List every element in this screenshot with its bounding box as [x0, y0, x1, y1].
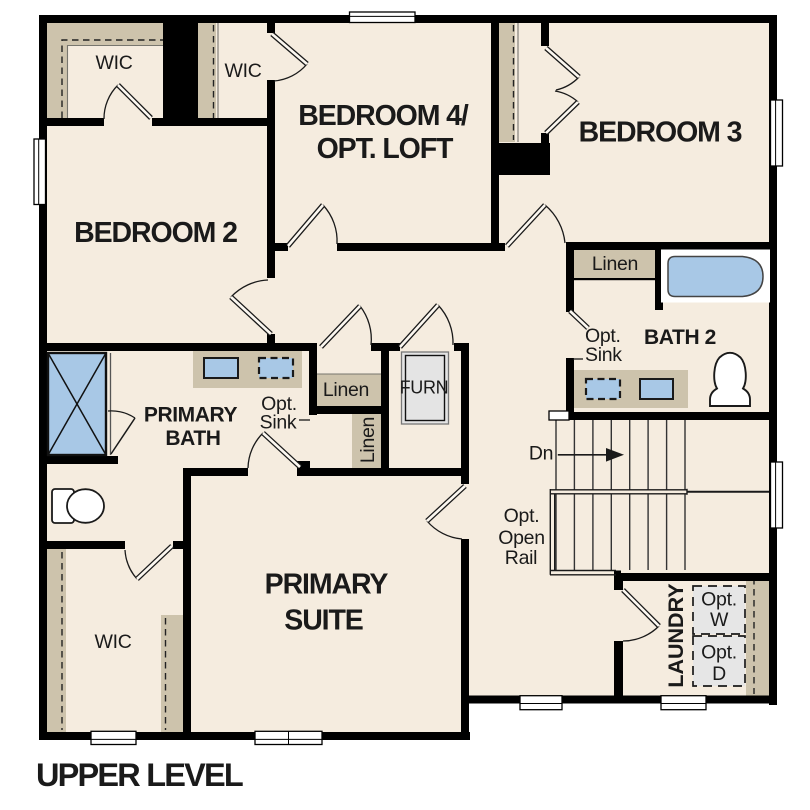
svg-text:WIC: WIC [94, 631, 131, 653]
svg-text:UPPER LEVEL: UPPER LEVEL [36, 757, 243, 793]
svg-text:BATH: BATH [165, 427, 220, 450]
svg-text:BEDROOM 3: BEDROOM 3 [579, 117, 742, 149]
svg-text:LAUNDRY: LAUNDRY [664, 583, 688, 687]
svg-text:Linen: Linen [323, 379, 369, 401]
svg-text:BEDROOM 2: BEDROOM 2 [74, 217, 237, 249]
svg-text:Rail: Rail [505, 547, 537, 569]
svg-text:Linen: Linen [592, 253, 638, 275]
svg-text:BATH 2: BATH 2 [644, 326, 716, 349]
svg-text:Sink: Sink [585, 344, 622, 366]
svg-text:WIC: WIC [95, 52, 132, 74]
svg-text:FURN: FURN [400, 378, 449, 398]
svg-text:W: W [710, 609, 729, 631]
svg-text:WIC: WIC [224, 60, 261, 82]
svg-text:Opt.: Opt. [701, 589, 737, 611]
svg-text:Linen: Linen [357, 417, 379, 463]
svg-text:SUITE: SUITE [284, 605, 363, 637]
svg-text:OPT. LOFT: OPT. LOFT [317, 133, 454, 165]
svg-text:PRIMARY: PRIMARY [265, 569, 389, 601]
svg-text:D: D [712, 663, 726, 685]
svg-text:Dn: Dn [529, 443, 553, 465]
svg-text:Opt.: Opt. [504, 505, 540, 527]
svg-text:Sink: Sink [260, 412, 297, 434]
svg-text:BEDROOM 4/: BEDROOM 4/ [298, 100, 469, 132]
svg-text:Opt.: Opt. [701, 642, 737, 664]
svg-text:Open: Open [498, 527, 545, 549]
svg-text:PRIMARY: PRIMARY [144, 404, 238, 427]
